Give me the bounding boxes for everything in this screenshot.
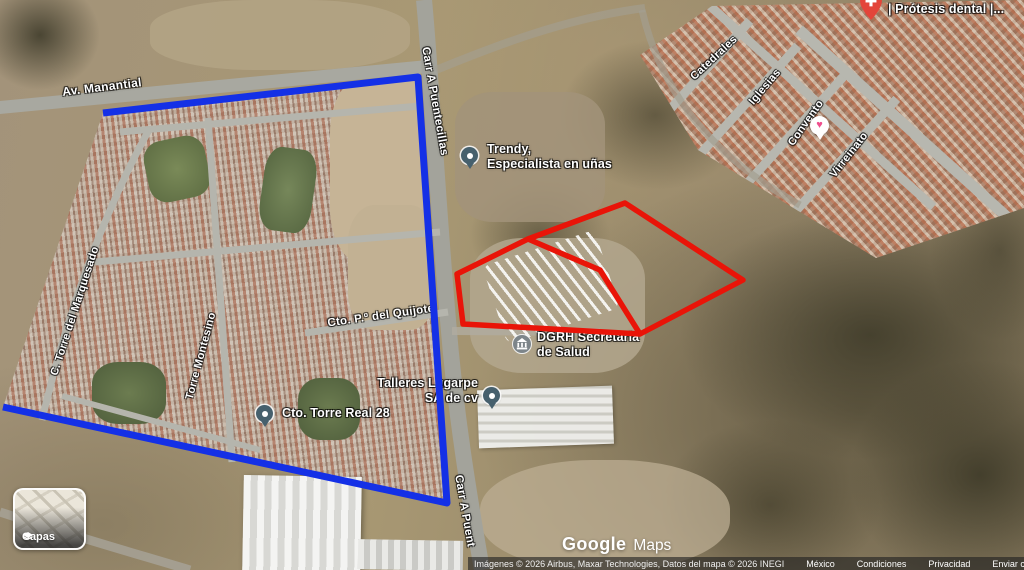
attribution-imagery: Imágenes © 2026 Airbus, Maxar Technologi… (474, 559, 784, 569)
layers-icon (22, 531, 34, 543)
attribution-link-terms[interactable]: Condiciones (857, 559, 907, 569)
attribution-link-mexico[interactable]: México (806, 559, 835, 569)
attribution-bar: Imágenes © 2026 Airbus, Maxar Technologi… (468, 557, 1024, 570)
red-selection-polygon (457, 203, 743, 334)
layers-button[interactable]: Capas (13, 488, 86, 550)
map-canvas[interactable]: Av. Manantial Carr A Puentecillas Carr A… (0, 0, 1024, 570)
annotations-layer (0, 0, 1024, 570)
attribution-link-privacy[interactable]: Privacidad (928, 559, 970, 569)
watermark-product: Maps (633, 537, 671, 555)
watermark-brand: Google (562, 534, 626, 555)
google-maps-watermark[interactable]: Google Maps (562, 534, 671, 555)
blue-selection-polygon (3, 77, 447, 503)
attribution-link-feedback[interactable]: Enviar comentarios (992, 559, 1024, 569)
